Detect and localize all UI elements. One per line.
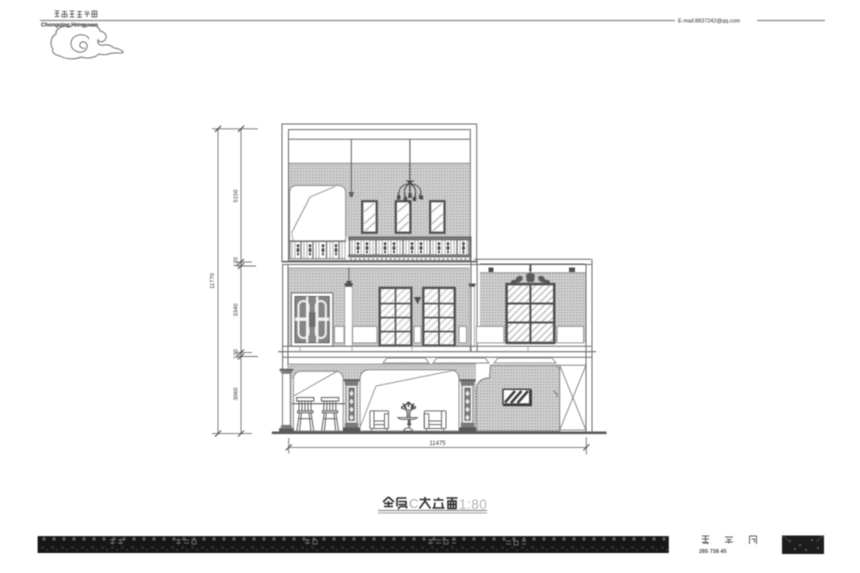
svg-text:11475: 11475 — [429, 441, 446, 447]
svg-text:285 738 45: 285 738 45 — [699, 549, 727, 555]
svg-text:C: C — [409, 496, 418, 511]
svg-text:120: 120 — [234, 349, 240, 359]
svg-text:1:80: 1:80 — [459, 497, 487, 512]
svg-text:5150: 5150 — [234, 190, 240, 203]
svg-text:11770: 11770 — [210, 273, 216, 289]
svg-text:3340: 3340 — [234, 304, 240, 317]
svg-text:E-mail:8837242@qq.com: E-mail:8837242@qq.com — [678, 18, 741, 24]
svg-text:120: 120 — [234, 257, 240, 267]
svg-text:3060: 3060 — [234, 388, 240, 401]
